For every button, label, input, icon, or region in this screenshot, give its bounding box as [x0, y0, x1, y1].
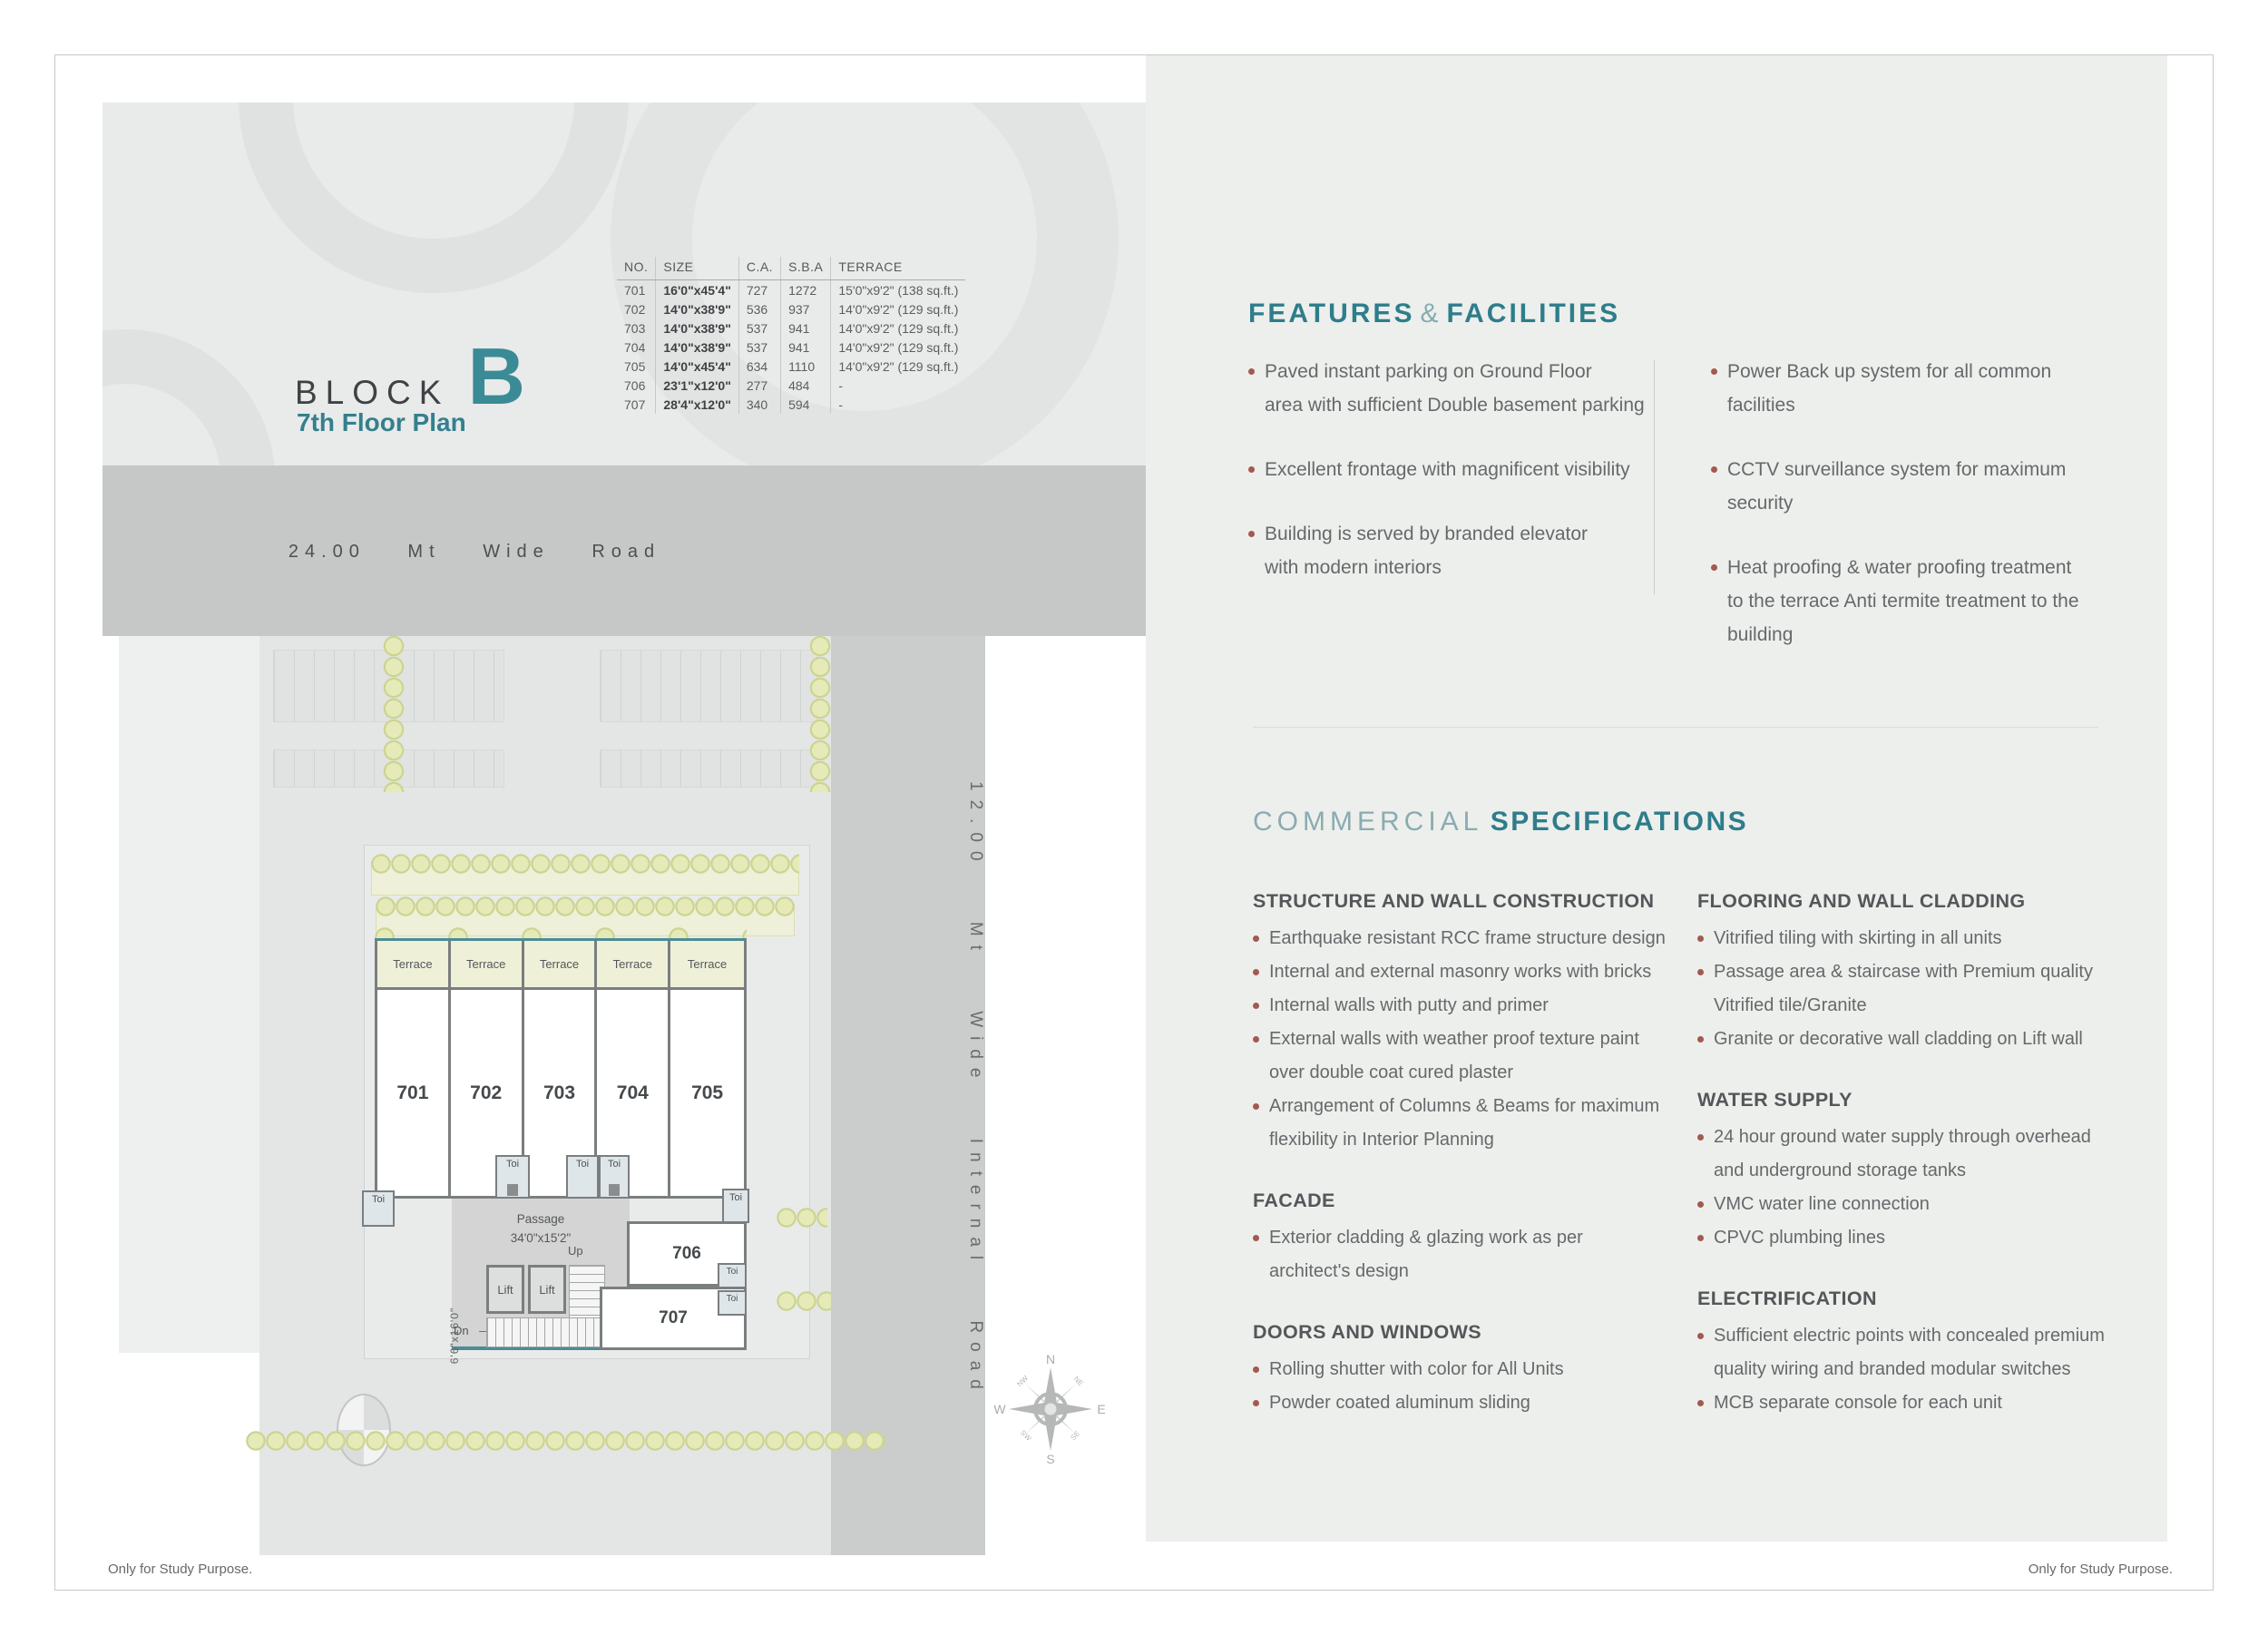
bullet-icon [1711, 564, 1717, 571]
compass-nw: NW [1015, 1374, 1030, 1388]
col-header-sba: S.B.A [781, 257, 831, 280]
compass-s: S [1046, 1452, 1054, 1466]
features-title-word2: FACILITIES [1446, 299, 1620, 328]
unit-table-cell: 937 [781, 299, 831, 318]
passage-word: Passage [452, 1209, 630, 1229]
brochure-page: FEATURES&FACILITIES Paved instant parkin… [0, 0, 2268, 1645]
unit-table-cell: 941 [781, 338, 831, 357]
bullet-icon [1697, 1333, 1704, 1339]
unit-table-cell: 16'0"x45'4" [656, 280, 738, 300]
toilet-label: Toi [727, 1294, 738, 1304]
specifications-title-word2: SPECIFICATIONS [1491, 807, 1748, 837]
bullet-text: Vitrified tiling with skirting in all un… [1714, 922, 2002, 955]
spec-section: DOORS AND WINDOWSRolling shutter with co… [1253, 1321, 1675, 1420]
feature-item: Power Back up system for all common faci… [1711, 355, 2108, 422]
terrace-cell: Terrace [670, 941, 744, 987]
bullet-text: Passage area & staircase with Premium qu… [1714, 955, 2093, 1023]
unit-table-row: 70214'0"x38'9"53693714'0"x9'2" (129 sq.f… [617, 299, 965, 318]
tree-row-band [376, 896, 795, 916]
unit-table-cell: 707 [617, 395, 656, 414]
block-title: BLOCK B [295, 337, 525, 416]
bullet-icon [1253, 935, 1259, 942]
spec-item: Sufficient electric points with conceale… [1697, 1319, 2142, 1386]
spec-section-heading: STRUCTURE AND WALL CONSTRUCTION [1253, 890, 1675, 913]
unit-table-head: NO. SIZE C.A. S.B.A TERRACE [617, 257, 965, 280]
feature-item: Excellent frontage with magnificent visi… [1248, 453, 1654, 486]
specifications-title-word1: COMMERCIAL [1253, 807, 1482, 837]
bullet-text: CCTV surveillance system for maximum sec… [1727, 453, 2108, 520]
bullet-icon [1248, 368, 1255, 375]
bullet-text: Excellent frontage with magnificent visi… [1265, 453, 1630, 486]
bullet-text: MCB separate console for each unit [1714, 1386, 2002, 1420]
bullet-text: Powder coated aluminum sliding [1269, 1386, 1530, 1420]
unit-table-cell: 277 [738, 376, 780, 395]
bullet-text: Heat proofing & water proofing treatment… [1727, 551, 2108, 651]
bullet-text: Sufficient electric points with conceale… [1714, 1319, 2105, 1386]
toilet-label: Toi [576, 1159, 589, 1170]
bullet-icon [1711, 466, 1717, 473]
toilet-label: Toi [729, 1192, 742, 1203]
unit-table: NO. SIZE C.A. S.B.A TERRACE 70116'0"x45'… [617, 257, 965, 414]
unit-number: 707 [659, 1308, 688, 1328]
spec-item: External walls with weather proof textur… [1253, 1023, 1675, 1090]
spec-item: Internal and external masonry works with… [1253, 955, 1675, 989]
lift-1: Lift [486, 1265, 524, 1314]
toilet-label: Toi [608, 1159, 621, 1170]
unit-table-row: 70314'0"x38'9"53794114'0"x9'2" (129 sq.f… [617, 318, 965, 338]
bullet-text: VMC water line connection [1714, 1188, 1930, 1221]
toilet-705: Toi [722, 1189, 749, 1223]
unit-table-cell: 634 [738, 357, 780, 376]
spec-section-heading: FACADE [1253, 1190, 1675, 1212]
tree-row-bottom [246, 1431, 886, 1451]
bullet-icon [1253, 1003, 1259, 1009]
terrace-cell: Terrace [451, 941, 524, 987]
bullet-text: External walls with weather proof textur… [1269, 1023, 1639, 1090]
unit-table-cell: 536 [738, 299, 780, 318]
specs-column-left: STRUCTURE AND WALL CONSTRUCTIONEarthquak… [1253, 890, 1675, 1453]
bullet-text: Earthquake resistant RCC frame structure… [1269, 922, 1666, 955]
unit-table-cell: 14'0"x9'2" (129 sq.ft.) [831, 299, 966, 318]
footer-note-right: Only for Study Purpose. [2028, 1562, 2173, 1577]
unit-table-row: 70116'0"x45'4"727127215'0"x9'2" (138 sq.… [617, 280, 965, 300]
compass-ring-inner [1043, 1402, 1058, 1416]
block-letter: B [467, 337, 525, 416]
toilet-703: Toi [566, 1155, 599, 1199]
spec-section: ELECTRIFICATIONSufficient electric point… [1697, 1288, 2142, 1420]
bullet-text: Internal walls with putty and primer [1269, 989, 1549, 1023]
unit-table-cell: 703 [617, 318, 656, 338]
unit-table-cell: 14'0"x9'2" (129 sq.ft.) [831, 338, 966, 357]
spec-item: Powder coated aluminum sliding [1253, 1386, 1675, 1420]
toilet-label: Toi [506, 1159, 519, 1170]
unit-table-cell: 340 [738, 395, 780, 414]
unit-table-cell: 537 [738, 338, 780, 357]
unit-table-row: 70728'4"x12'0"340594- [617, 395, 965, 414]
unit-table-cell: 14'0"x38'9" [656, 318, 738, 338]
spec-section: FLOORING AND WALL CLADDINGVitrified tili… [1697, 890, 2142, 1056]
features-title-word1: FEATURES [1248, 299, 1414, 328]
unit-table-cell: 23'1"x12'0" [656, 376, 738, 395]
col-header-terrace: TERRACE [831, 257, 966, 280]
spec-item: Earthquake resistant RCC frame structure… [1253, 922, 1675, 955]
stairs-down [486, 1317, 605, 1347]
top-road: 24.00 Mt Wide Road [103, 465, 1146, 636]
lift-2: Lift [528, 1265, 566, 1314]
decorative-swirl [239, 103, 629, 293]
page-frame: FEATURES&FACILITIES Paved instant parkin… [54, 54, 2214, 1591]
terrace-cell: Terrace [377, 941, 451, 987]
features-column-right: Power Back up system for all common faci… [1655, 355, 2108, 682]
spec-item-list: Sufficient electric points with conceale… [1697, 1319, 2142, 1420]
bullet-icon [1697, 1201, 1704, 1208]
bullet-icon [1711, 368, 1717, 375]
spec-item: Arrangement of Columns & Beams for maxim… [1253, 1090, 1675, 1157]
spec-item-list: Earthquake resistant RCC frame structure… [1253, 922, 1675, 1157]
spec-item-list: Exterior cladding & glazing work as pera… [1253, 1221, 1675, 1288]
features-list-right: Power Back up system for all common faci… [1711, 355, 2108, 651]
compass-n: N [1046, 1353, 1055, 1366]
unit-table-cell: 15'0"x9'2" (138 sq.ft.) [831, 280, 966, 300]
tree-cluster [777, 1208, 827, 1228]
compass-se: SE [1069, 1429, 1081, 1442]
terrace-row: TerraceTerraceTerraceTerraceTerrace [375, 938, 747, 990]
bullet-icon [1697, 1400, 1704, 1406]
bullet-icon [1248, 531, 1255, 537]
spec-item: Exterior cladding & glazing work as pera… [1253, 1221, 1675, 1288]
feature-item: CCTV surveillance system for maximum sec… [1711, 453, 2108, 520]
col-header-no: NO. [617, 257, 656, 280]
unit-table-cell: 28'4"x12'0" [656, 395, 738, 414]
unit-table-header-row: NO. SIZE C.A. S.B.A TERRACE [617, 257, 965, 280]
spec-item: Internal walls with putty and primer [1253, 989, 1675, 1023]
unit-table-row: 70623'1"x12'0"277484- [617, 376, 965, 395]
toilet-label: Toi [727, 1267, 738, 1277]
compass-e: E [1097, 1402, 1105, 1416]
unit-table-body: 70116'0"x45'4"727127215'0"x9'2" (138 sq.… [617, 280, 965, 415]
unit-row: 701702703704705 [375, 990, 747, 1199]
floor-plan-label: 7th Floor Plan [297, 408, 466, 437]
bullet-text: Internal and external masonry works with… [1269, 955, 1651, 989]
unit-cell-701: 701 [377, 990, 451, 1196]
bullet-text: 24 hour ground water supply through over… [1714, 1121, 2091, 1188]
toilet-704: Toi [599, 1155, 630, 1199]
bullet-icon [1253, 1036, 1259, 1043]
duct [507, 1184, 518, 1196]
spec-item-list: Rolling shutter with color for All Units… [1253, 1353, 1675, 1420]
unit-cell-705: 705 [670, 990, 744, 1196]
bullet-icon [1248, 466, 1255, 473]
spec-item: Passage area & staircase with Premium qu… [1697, 955, 2142, 1023]
tree-cluster [777, 1291, 831, 1311]
bullet-icon [1697, 1235, 1704, 1241]
unit-number: 706 [672, 1244, 701, 1264]
bullet-icon [1253, 1103, 1259, 1110]
compass-rose: N S E W NW NE SW SE [994, 1353, 1108, 1466]
spec-item-list: 24 hour ground water supply through over… [1697, 1121, 2142, 1255]
bullet-text: Power Back up system for all common faci… [1727, 355, 2108, 422]
internal-road-label: 12.00 Mt Wide Internal Road [831, 772, 985, 1407]
parking-stalls [600, 749, 817, 788]
compass-sw: SW [1019, 1428, 1033, 1443]
spec-item: Granite or decorative wall cladding on L… [1697, 1023, 2142, 1056]
spec-item: 24 hour ground water supply through over… [1697, 1121, 2142, 1188]
features-column-left: Paved instant parking on Ground Floorare… [1248, 355, 1654, 682]
features-title: FEATURES&FACILITIES [1248, 299, 1620, 329]
block-word: BLOCK [295, 374, 449, 412]
features-list-left: Paved instant parking on Ground Floorare… [1248, 355, 1654, 584]
site-plan: 12.00 Mt Wide Internal Road TerraceTerra… [103, 636, 1146, 1555]
duct [609, 1184, 620, 1196]
toilet-701: Toi [362, 1190, 395, 1227]
spec-section-heading: WATER SUPPLY [1697, 1089, 2142, 1111]
toilet-label: Toi [372, 1194, 385, 1205]
footer-note-left: Only for Study Purpose. [108, 1562, 252, 1577]
specifications-title: COMMERCIAL SPECIFICATIONS [1253, 807, 1748, 837]
bullet-text: Granite or decorative wall cladding on L… [1714, 1023, 2083, 1056]
bullet-icon [1697, 935, 1704, 942]
unit-table-cell: 14'0"x38'9" [656, 299, 738, 318]
unit-table-cell: 702 [617, 299, 656, 318]
terrace-cell: Terrace [597, 941, 670, 987]
features-title-amp: & [1414, 299, 1446, 328]
lift-label: Lift [497, 1283, 513, 1297]
unit-table-cell: - [831, 395, 966, 414]
bullet-text: Arrangement of Columns & Beams for maxim… [1269, 1090, 1659, 1157]
unit-table-cell: 537 [738, 318, 780, 338]
unit-table-cell: 704 [617, 338, 656, 357]
spec-item: CPVC plumbing lines [1697, 1221, 2142, 1255]
decorative-swirl [103, 329, 275, 465]
unit-table-row: 70514'0"x45'4"634111014'0"x9'2" (129 sq.… [617, 357, 965, 376]
bullet-text: CPVC plumbing lines [1714, 1221, 1885, 1255]
spec-section-heading: FLOORING AND WALL CLADDING [1697, 890, 2142, 913]
spec-section-heading: DOORS AND WINDOWS [1253, 1321, 1675, 1344]
unit-table-cell: 706 [617, 376, 656, 395]
unit-table-cell: 484 [781, 376, 831, 395]
site-left-area [119, 636, 261, 1353]
compass-w: W [994, 1402, 1006, 1416]
bullet-icon [1697, 969, 1704, 975]
spec-item: MCB separate console for each unit [1697, 1386, 2142, 1420]
terrace-cell: Terrace [524, 941, 598, 987]
specs-column-right: FLOORING AND WALL CLADDINGVitrified tili… [1697, 890, 2142, 1453]
bullet-text: Paved instant parking on Ground Floorare… [1265, 355, 1645, 422]
header-panel: BLOCK B 7th Floor Plan NO. SIZE C.A. S.B… [103, 103, 1146, 465]
tree-row-left [382, 636, 406, 792]
spec-item: Vitrified tiling with skirting in all un… [1697, 922, 2142, 955]
unit-table-cell: 14'0"x9'2" (129 sq.ft.) [831, 318, 966, 338]
spec-item: Rolling shutter with color for All Units [1253, 1353, 1675, 1386]
tree-row-band [371, 854, 799, 874]
building-block: TerraceTerraceTerraceTerraceTerrace 7017… [375, 938, 747, 1350]
bullet-text: Building is served by branded elevatorwi… [1265, 517, 1588, 584]
spec-item: VMC water line connection [1697, 1188, 2142, 1221]
unit-table-cell: 701 [617, 280, 656, 300]
spec-section: WATER SUPPLY24 hour ground water supply … [1697, 1089, 2142, 1255]
bullet-icon [1253, 1235, 1259, 1241]
bullet-icon [1253, 1366, 1259, 1373]
spec-section: STRUCTURE AND WALL CONSTRUCTIONEarthquak… [1253, 890, 1675, 1157]
unit-table-cell: 1272 [781, 280, 831, 300]
parking-stalls [600, 650, 817, 722]
col-header-size: SIZE [656, 257, 738, 280]
spec-section: FACADEExterior cladding & glazing work a… [1253, 1190, 1675, 1288]
bullet-icon [1697, 1036, 1704, 1043]
unit-table-cell: 705 [617, 357, 656, 376]
bullet-icon [1697, 1134, 1704, 1141]
section-divider [1253, 727, 2098, 728]
landscape-circle [337, 1394, 391, 1466]
lift-label: Lift [539, 1283, 554, 1297]
bullet-icon [1253, 969, 1259, 975]
unit-table-row: 70414'0"x38'9"53794114'0"x9'2" (129 sq.f… [617, 338, 965, 357]
tree-row-right [808, 636, 832, 792]
toilet-702: Toi [495, 1155, 530, 1199]
staircase-size-label: 6'6"x16'0" [448, 1277, 461, 1395]
unit-table-cell: 14'0"x38'9" [656, 338, 738, 357]
unit-table-cell: 727 [738, 280, 780, 300]
unit-table-cell: 14'0"x9'2" (129 sq.ft.) [831, 357, 966, 376]
unit-table-cell: - [831, 376, 966, 395]
toilet-707: Toi [718, 1290, 747, 1316]
top-road-label: 24.00 Mt Wide Road [103, 542, 846, 563]
passage-size: 34'0"x15'2" [452, 1229, 630, 1248]
stairs-up-label: Up [568, 1244, 583, 1258]
feature-item: Building is served by branded elevatorwi… [1248, 517, 1654, 584]
spec-section-heading: ELECTRIFICATION [1697, 1288, 2142, 1310]
bullet-text: Rolling shutter with color for All Units [1269, 1353, 1564, 1386]
unit-table-cell: 594 [781, 395, 831, 414]
passage-label: Passage 34'0"x15'2" [452, 1209, 630, 1248]
spec-item-list: Vitrified tiling with skirting in all un… [1697, 922, 2142, 1056]
internal-road: 12.00 Mt Wide Internal Road [831, 636, 985, 1555]
unit-table-cell: 14'0"x45'4" [656, 357, 738, 376]
unit-table-cell: 941 [781, 318, 831, 338]
features-columns: Paved instant parking on Ground Floorare… [1248, 355, 2156, 682]
bullet-text: Exterior cladding & glazing work as pera… [1269, 1221, 1583, 1288]
col-header-ca: C.A. [738, 257, 780, 280]
right-page-panel: FEATURES&FACILITIES Paved instant parkin… [1146, 55, 2167, 1542]
unit-table-cell: 1110 [781, 357, 831, 376]
toilet-706: Toi [718, 1263, 747, 1288]
bullet-icon [1253, 1400, 1259, 1406]
feature-item: Paved instant parking on Ground Floorare… [1248, 355, 1654, 422]
feature-item: Heat proofing & water proofing treatment… [1711, 551, 2108, 651]
